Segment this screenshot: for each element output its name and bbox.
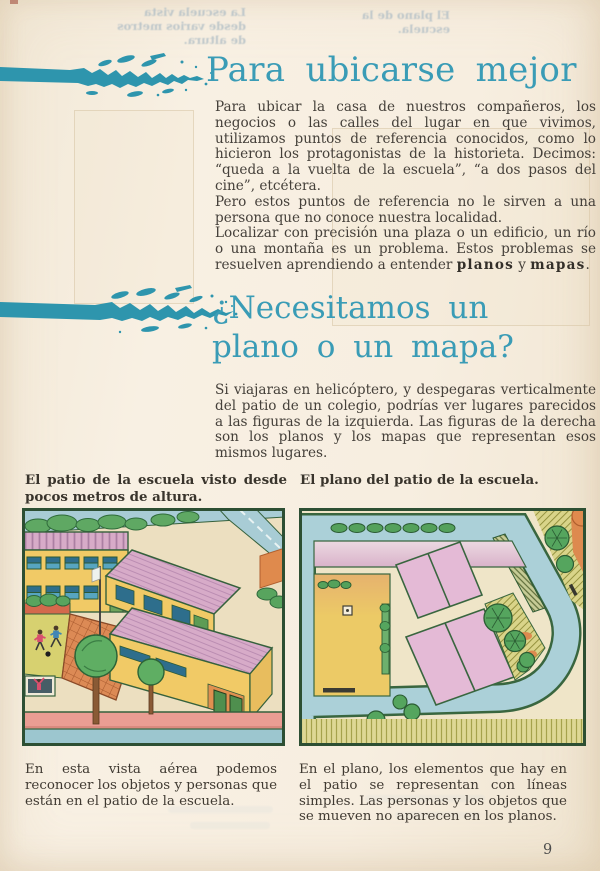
sidewalk	[22, 712, 285, 729]
brush-stroke-decoration	[0, 284, 245, 342]
question-paragraph: Si viajaras en helicóptero, y despegaras…	[215, 383, 596, 462]
section-title-line2: plano o un mapa?	[212, 328, 514, 367]
brush-stroke-decoration	[0, 50, 215, 102]
intro-paragraphs: Para ubicar la casa de nuestros compañer…	[215, 100, 596, 274]
bleedthrough-line	[190, 822, 270, 829]
hatched-verge	[301, 719, 584, 744]
section-title-line1: ¿Necesitamos un	[212, 289, 514, 328]
paragraph-text: y	[514, 257, 530, 273]
figure-aerial-view	[22, 508, 285, 746]
bleedthrough-text-left: La escuela vista desde varios metros de …	[108, 5, 246, 47]
keyword-planos: planos	[457, 257, 514, 273]
bench-symbol	[323, 688, 355, 693]
page-number: 9	[543, 842, 552, 858]
scan-mark	[10, 0, 18, 4]
flag	[92, 567, 100, 582]
bushes-right	[257, 548, 285, 608]
paragraph: Pero estos puntos de referencia no le si…	[215, 195, 596, 227]
book-page: La escuela vista desde varios metros de …	[0, 0, 600, 871]
figure-plan-view	[299, 508, 586, 746]
planter	[24, 594, 70, 614]
street-bottom	[22, 729, 285, 744]
bleedthrough-figure	[74, 110, 194, 304]
soccer-goal	[25, 676, 55, 696]
patio-plan	[314, 574, 390, 696]
caption-plan-top: El plano del patio de la escuela.	[300, 472, 572, 489]
caption-aerial-top: El patio de la escuela visto desde pocos…	[25, 472, 287, 505]
paragraph: Para ubicar la casa de nuestros compañer…	[215, 100, 596, 195]
paragraph: Localizar con precisión una plaza o un e…	[215, 226, 596, 273]
bleedthrough-text-right: El plano de la escuela.	[328, 8, 450, 36]
keyword-mapas: mapas	[530, 257, 585, 273]
paragraph-text: .	[585, 257, 589, 273]
page-title: Para ubicarse mejor	[206, 50, 577, 90]
soccer-ball	[45, 651, 50, 656]
caption-aerial-bottom: En esta vista aérea podemos reconocer lo…	[25, 762, 277, 809]
section-title: ¿Necesitamos un plano o un mapa?	[212, 289, 514, 367]
caption-plan-bottom: En el plano, los elementos que hay en el…	[299, 762, 567, 825]
paragraph: Si viajaras en helicóptero, y despegaras…	[215, 383, 596, 462]
